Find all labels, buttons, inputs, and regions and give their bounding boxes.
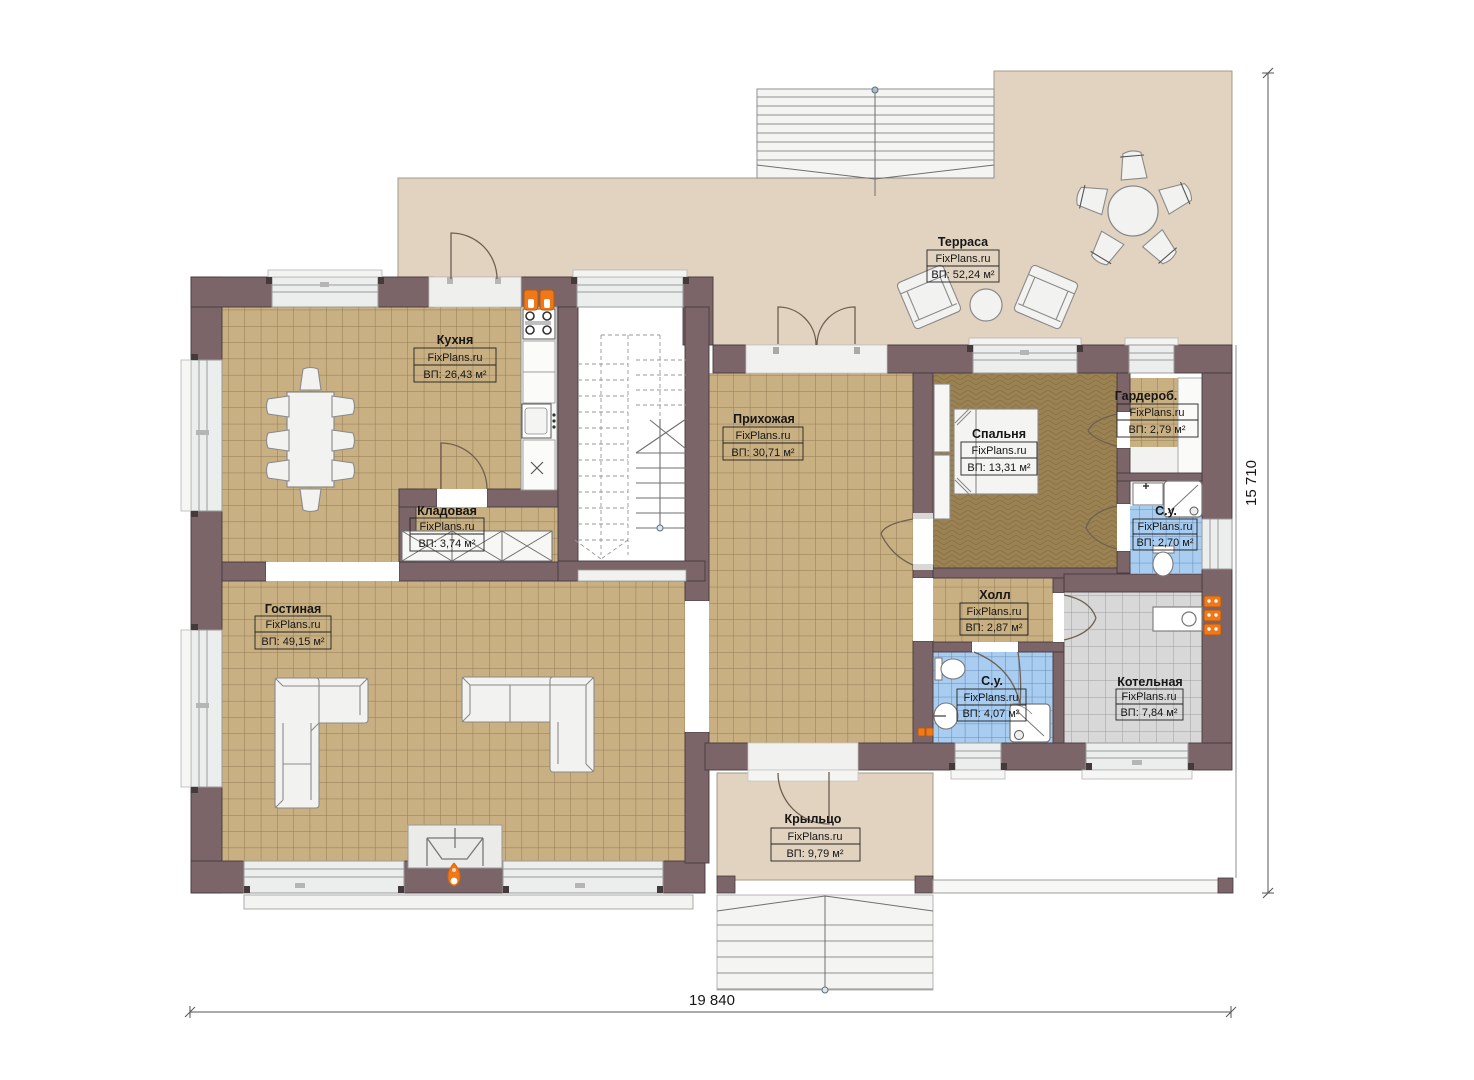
svg-text:Крыльцо: Крыльцо — [785, 812, 842, 826]
svg-text:Котельная: Котельная — [1117, 675, 1182, 689]
svg-text:ВП: 30,71 м²: ВП: 30,71 м² — [731, 447, 795, 459]
svg-text:Кладовая: Кладовая — [417, 504, 477, 518]
svg-text:FixPlans.ru: FixPlans.ru — [971, 445, 1026, 457]
svg-text:С.у.: С.у. — [1155, 504, 1177, 518]
svg-text:ВП: 26,43 м²: ВП: 26,43 м² — [423, 369, 487, 381]
svg-text:Гардероб.: Гардероб. — [1115, 389, 1178, 403]
svg-text:15 710: 15 710 — [1243, 460, 1260, 506]
svg-text:FixPlans.ru: FixPlans.ru — [787, 831, 842, 843]
svg-text:С.у.: С.у. — [981, 674, 1003, 688]
svg-text:ВП: 9,79 м²: ВП: 9,79 м² — [786, 848, 843, 860]
svg-text:Спальня: Спальня — [972, 427, 1026, 441]
svg-text:Холл: Холл — [979, 588, 1010, 602]
svg-text:ВП: 49,15 м²: ВП: 49,15 м² — [261, 636, 325, 648]
svg-text:ВП: 2,79 м²: ВП: 2,79 м² — [1128, 424, 1185, 436]
svg-text:Терраса: Терраса — [938, 235, 989, 249]
svg-text:FixPlans.ru: FixPlans.ru — [966, 606, 1021, 618]
svg-text:ВП: 2,70 м²: ВП: 2,70 м² — [1136, 537, 1193, 549]
svg-text:Гостиная: Гостиная — [265, 602, 322, 616]
svg-text:Кухня: Кухня — [437, 333, 474, 347]
svg-text:FixPlans.ru: FixPlans.ru — [419, 521, 474, 533]
svg-text:FixPlans.ru: FixPlans.ru — [265, 619, 320, 631]
svg-text:FixPlans.ru: FixPlans.ru — [427, 352, 482, 364]
svg-text:ВП: 7,84 м²: ВП: 7,84 м² — [1120, 707, 1177, 719]
svg-text:FixPlans.ru: FixPlans.ru — [735, 430, 790, 442]
svg-text:ВП: 4,07 м²: ВП: 4,07 м² — [962, 708, 1019, 720]
svg-text:FixPlans.ru: FixPlans.ru — [1121, 691, 1176, 703]
svg-text:19 840: 19 840 — [689, 992, 735, 1009]
svg-text:Прихожая: Прихожая — [733, 412, 795, 426]
svg-text:FixPlans.ru: FixPlans.ru — [963, 692, 1018, 704]
svg-text:FixPlans.ru: FixPlans.ru — [1129, 407, 1184, 419]
svg-text:ВП: 52,24 м²: ВП: 52,24 м² — [931, 269, 995, 281]
svg-text:ВП: 3,74 м²: ВП: 3,74 м² — [418, 538, 475, 550]
svg-text:FixPlans.ru: FixPlans.ru — [1137, 521, 1192, 533]
svg-text:FixPlans.ru: FixPlans.ru — [935, 253, 990, 265]
svg-text:ВП: 2,87 м²: ВП: 2,87 м² — [965, 622, 1022, 634]
svg-text:ВП: 13,31 м²: ВП: 13,31 м² — [967, 462, 1031, 474]
